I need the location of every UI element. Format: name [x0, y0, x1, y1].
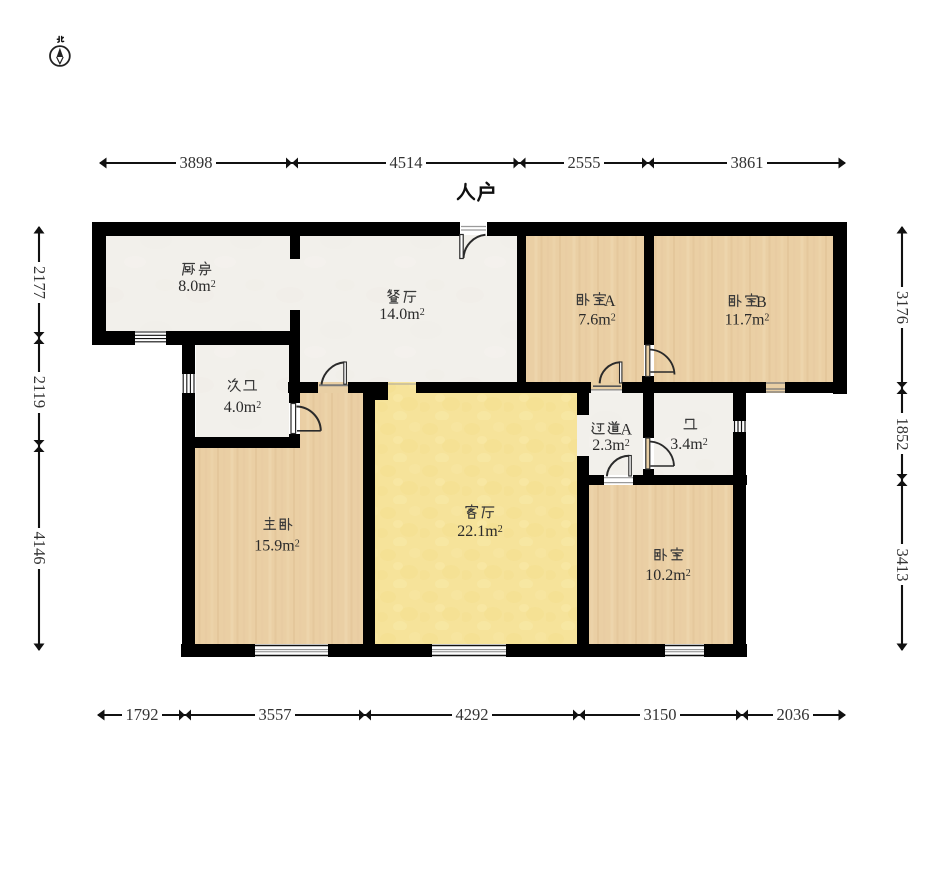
svg-text:3150: 3150: [644, 705, 677, 724]
svg-text:1792: 1792: [126, 705, 159, 724]
svg-text:1852: 1852: [893, 418, 912, 451]
svg-text:15.9m2: 15.9m2: [254, 538, 299, 555]
svg-text:3861: 3861: [731, 153, 764, 172]
svg-text:8.0m2: 8.0m2: [178, 278, 215, 295]
svg-text:2036: 2036: [777, 705, 810, 724]
svg-text:3176: 3176: [893, 291, 912, 324]
svg-text:2555: 2555: [568, 153, 601, 172]
svg-text:3898: 3898: [180, 153, 213, 172]
svg-text:3557: 3557: [259, 705, 292, 724]
svg-text:4514: 4514: [390, 153, 423, 172]
svg-text:A: A: [621, 422, 633, 439]
svg-text:11.7m2: 11.7m2: [725, 312, 770, 329]
svg-text:7.6m2: 7.6m2: [578, 312, 615, 329]
svg-text:4292: 4292: [456, 705, 489, 724]
svg-text:A: A: [604, 293, 616, 310]
svg-text:2119: 2119: [30, 376, 49, 408]
svg-text:B: B: [756, 294, 767, 311]
svg-text:3413: 3413: [893, 549, 912, 582]
svg-text:4146: 4146: [30, 532, 49, 565]
svg-text:2177: 2177: [30, 266, 49, 299]
svg-text:2.3m2: 2.3m2: [592, 437, 629, 454]
svg-text:22.1m2: 22.1m2: [457, 523, 502, 540]
svg-text:14.0m2: 14.0m2: [379, 306, 424, 323]
svg-text:10.2m2: 10.2m2: [645, 567, 690, 584]
svg-text:3.4m2: 3.4m2: [670, 436, 707, 453]
svg-text:4.0m2: 4.0m2: [224, 399, 261, 416]
